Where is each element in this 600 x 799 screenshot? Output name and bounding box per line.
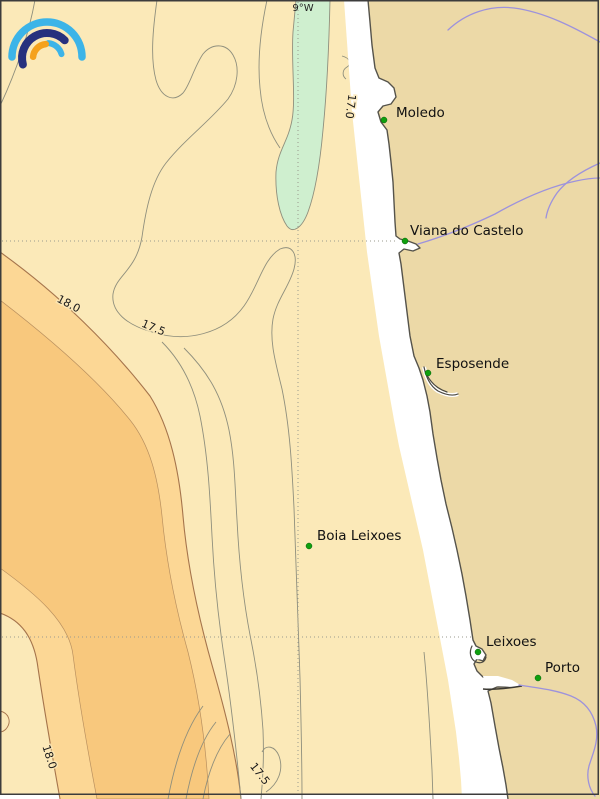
place-label: Moledo bbox=[396, 105, 445, 121]
place-label: Viana do Castelo bbox=[410, 223, 524, 239]
place-label: Porto bbox=[545, 660, 580, 676]
place-marker-dot bbox=[535, 675, 541, 681]
sst-coastal-map: 9°W 17.0 18.0 17.5 18.0 17.5 Moledo Vian… bbox=[0, 0, 600, 799]
place-label: Esposende bbox=[436, 356, 509, 372]
place-marker-dot bbox=[475, 649, 481, 655]
meridian-label: 9°W bbox=[292, 3, 313, 14]
place-marker-dot bbox=[306, 543, 312, 549]
map-canvas: 9°W 17.0 18.0 17.5 18.0 17.5 Moledo Vian… bbox=[0, 0, 600, 799]
place-marker-dot bbox=[381, 117, 387, 123]
place-marker-dot bbox=[425, 370, 431, 376]
place-label: Boia Leixoes bbox=[317, 528, 401, 544]
place-marker-dot bbox=[402, 238, 408, 244]
place-label: Leixoes bbox=[486, 634, 537, 650]
